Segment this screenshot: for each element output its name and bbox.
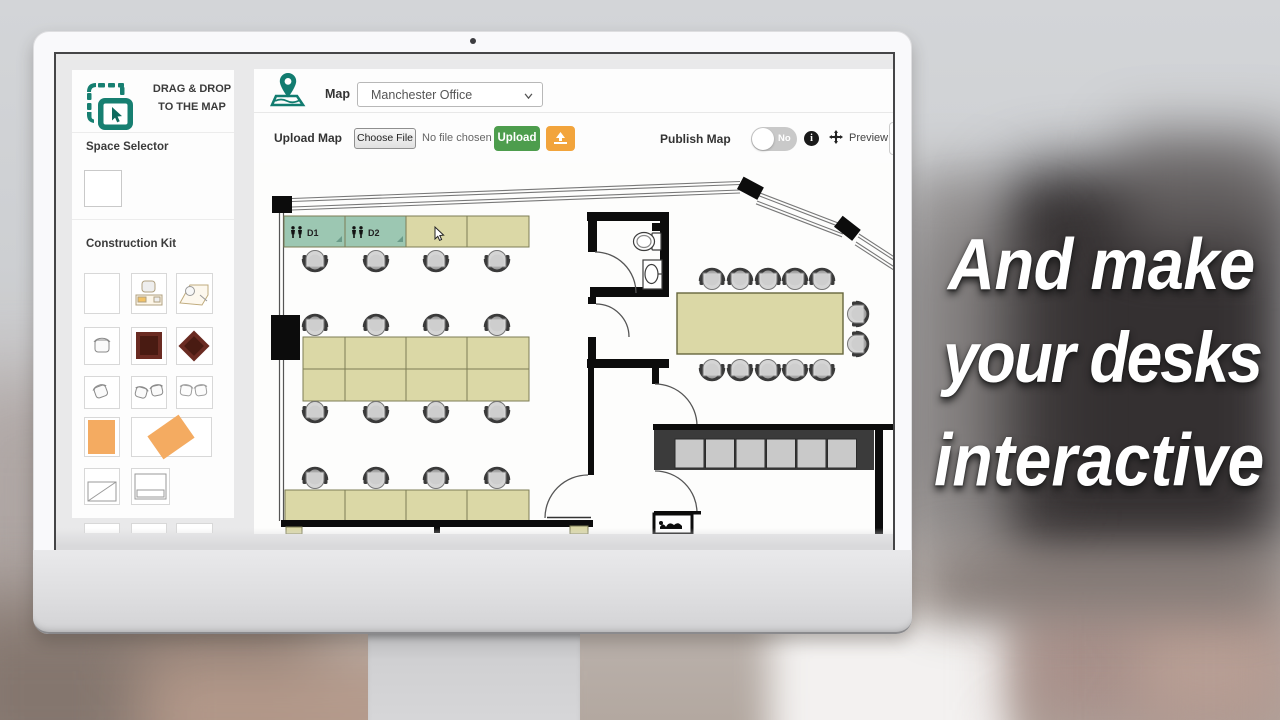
svg-text:D2: D2: [368, 228, 380, 238]
svg-text:D1: D1: [307, 228, 319, 238]
